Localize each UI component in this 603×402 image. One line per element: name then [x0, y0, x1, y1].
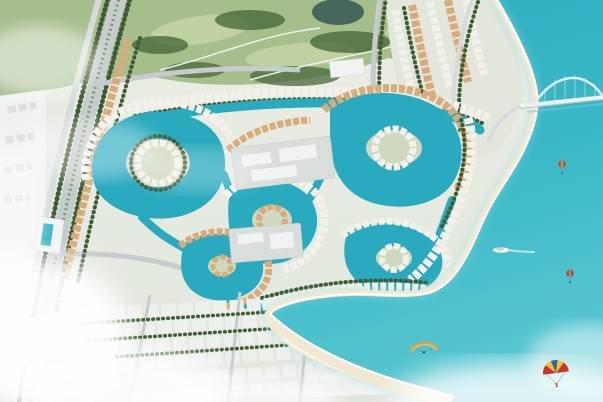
disclaimer-text: * Mọi thông tin trong tài liệu này đều c… [6, 386, 313, 399]
disclaimer-line-2: * Hình ảnh chỉ mang tính chất tham khảo,… [6, 393, 313, 400]
golf-clubhouse [329, 58, 364, 77]
golf-lake [312, 0, 364, 25]
scene-canvas [0, 0, 603, 402]
commercial-cluster [229, 223, 304, 263]
aerial-masterplan-rendering: * Mọi thông tin trong tài liệu này đều c… [0, 0, 603, 402]
